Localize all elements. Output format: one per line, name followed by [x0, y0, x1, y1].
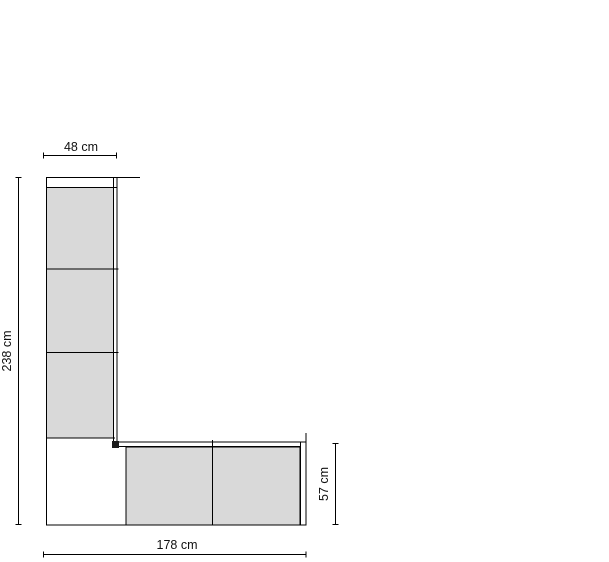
- dimension-label-bottom-width: 178 cm: [157, 538, 198, 552]
- base-cabinet-panel-2: [213, 447, 301, 525]
- base-cabinet: [46, 433, 307, 525]
- furniture-dimension-drawing: 48 cm 238 cm 178 cm 57 cm: [0, 0, 609, 562]
- corner-joint: [112, 441, 119, 448]
- tall-cabinet-panel-2: [47, 269, 114, 353]
- dimension-label-top-width: 48 cm: [64, 140, 98, 154]
- dimension-bottom-width: 178 cm: [44, 538, 307, 558]
- dimension-right-height: 57 cm: [317, 443, 339, 525]
- base-cabinet-panel-1: [126, 447, 213, 525]
- tall-cabinet-panel-1: [47, 188, 114, 270]
- drawing-svg: 48 cm 238 cm 178 cm 57 cm: [0, 0, 609, 562]
- dimension-label-left-height: 238 cm: [0, 331, 14, 372]
- dimension-left-height: 238 cm: [0, 177, 22, 525]
- dimension-label-right-height: 57 cm: [317, 467, 331, 501]
- tall-cabinet-panel-3: [47, 353, 114, 439]
- dimension-top-width: 48 cm: [44, 140, 117, 159]
